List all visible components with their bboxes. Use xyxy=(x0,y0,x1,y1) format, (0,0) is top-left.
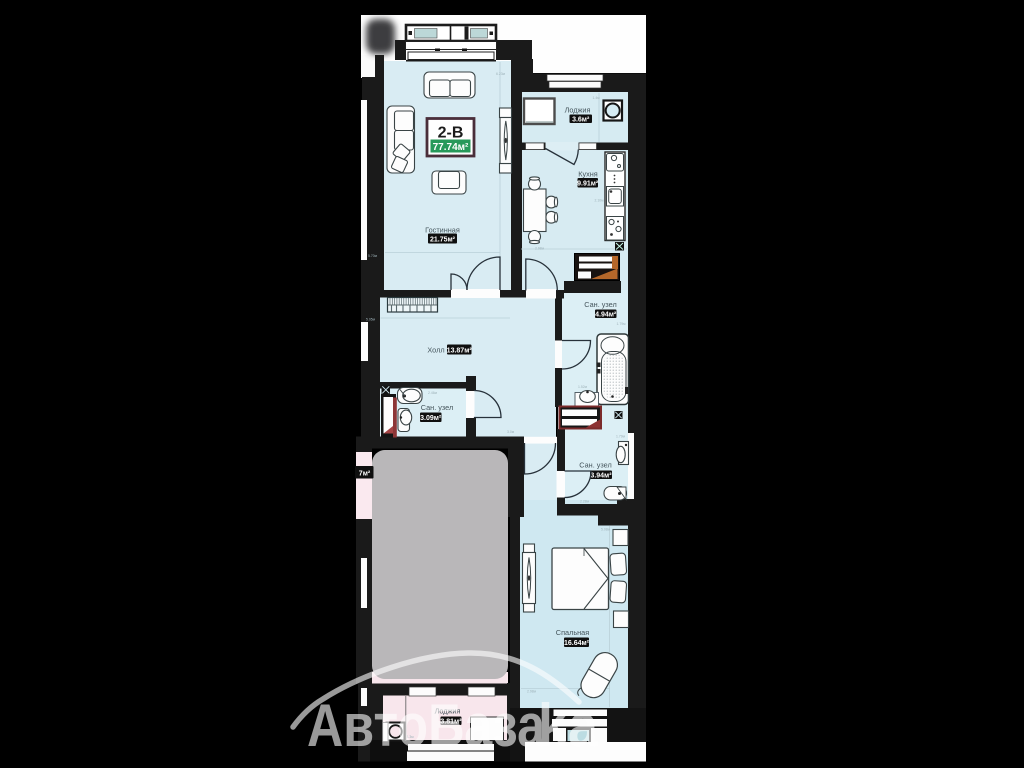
svg-text:6.23м: 6.23м xyxy=(496,72,506,76)
svg-text:7м²: 7м² xyxy=(359,471,371,478)
svg-text:Спальная: Спальная xyxy=(556,628,589,637)
svg-text:3.94м²: 3.94м² xyxy=(590,473,612,480)
svg-text:21.75м²: 21.75м² xyxy=(430,236,456,243)
svg-text:5.70м: 5.70м xyxy=(368,254,378,258)
svg-text:Гостинная: Гостинная xyxy=(425,226,460,235)
svg-text:Лоджия: Лоджия xyxy=(565,106,591,115)
svg-text:5.05м: 5.05м xyxy=(366,318,376,322)
svg-text:Сан. узел: Сан. узел xyxy=(584,300,616,309)
svg-text:2.46м: 2.46м xyxy=(428,391,438,395)
svg-text:2.28м: 2.28м xyxy=(580,500,590,504)
svg-text:77.74м²: 77.74м² xyxy=(433,142,469,153)
svg-text:Сан. узел: Сан. узел xyxy=(421,403,453,412)
svg-text:Сан. узел: Сан. узел xyxy=(579,461,611,470)
svg-text:Кухня: Кухня xyxy=(578,170,598,179)
svg-text:ka: ka xyxy=(538,692,599,759)
svg-text:3.6м²: 3.6м² xyxy=(572,116,590,123)
svg-text:4.94м²: 4.94м² xyxy=(595,312,617,319)
svg-text:9.91м²: 9.91м² xyxy=(577,181,599,188)
svg-text:АвтоБаза: АвтоБаза xyxy=(307,692,546,759)
svg-text:13.87м²: 13.87м² xyxy=(447,347,473,354)
svg-text:3.0м: 3.0м xyxy=(507,430,515,434)
svg-text:1.4м: 1.4м xyxy=(593,96,601,100)
svg-text:1.52м: 1.52м xyxy=(578,385,588,389)
svg-text:2-В: 2-В xyxy=(438,125,464,142)
svg-text:2.98м: 2.98м xyxy=(535,247,545,251)
svg-text:3.09м²: 3.09м² xyxy=(420,415,442,422)
svg-text:Холл: Холл xyxy=(427,346,444,355)
svg-text:1.79м: 1.79м xyxy=(617,322,627,326)
svg-text:16.64м²: 16.64м² xyxy=(564,640,590,647)
svg-text:2.10м: 2.10м xyxy=(595,199,605,203)
svg-text:1.79м: 1.79м xyxy=(616,435,626,439)
svg-text:5.08м: 5.08м xyxy=(601,528,611,532)
